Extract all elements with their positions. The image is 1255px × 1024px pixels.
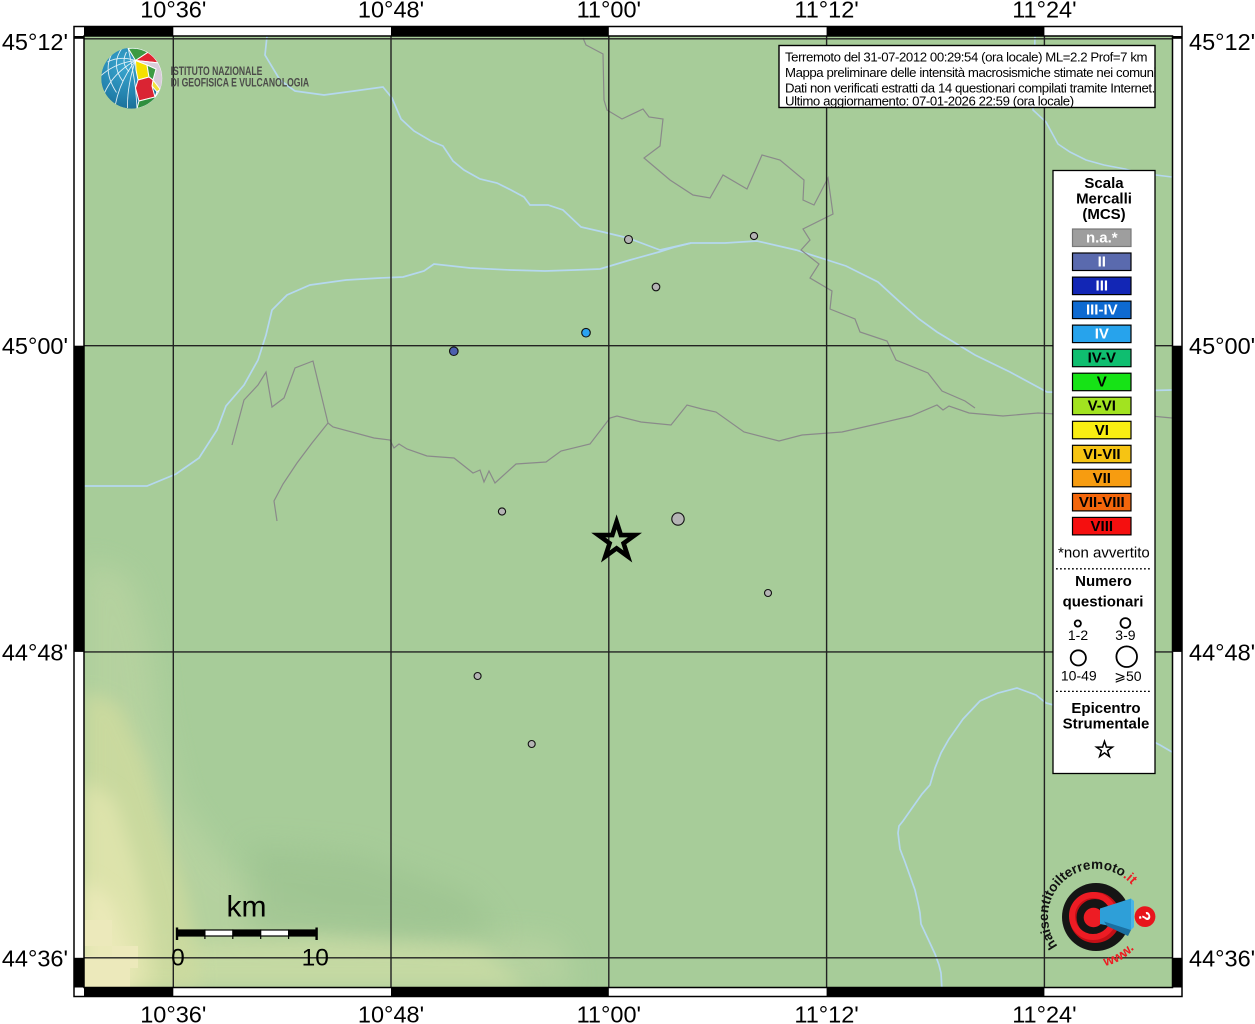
svg-text:Scala: Scala [1084, 175, 1124, 192]
svg-text:III-IV: III-IV [1086, 302, 1118, 319]
svg-text:DI GEOFISICA E VULCANOLOGIA: DI GEOFISICA E VULCANOLOGIA [171, 77, 310, 89]
svg-text:11°12': 11°12' [794, 0, 858, 23]
svg-text:1-2: 1-2 [1068, 627, 1088, 643]
svg-text:VI-VII: VI-VII [1083, 446, 1121, 463]
svg-text:VII: VII [1093, 470, 1111, 487]
svg-text:45°00': 45°00' [1189, 333, 1255, 359]
svg-text:10-49: 10-49 [1061, 668, 1097, 684]
svg-text:n.a.*: n.a.* [1086, 230, 1118, 247]
svg-text:Ultimo aggiornamento: 07-01-20: Ultimo aggiornamento: 07-01-2026 22:59 (… [785, 93, 1074, 108]
svg-text:km: km [227, 891, 267, 924]
svg-text:(MCS): (MCS) [1082, 206, 1125, 223]
svg-text:10°48': 10°48' [358, 0, 424, 23]
svg-text:11°24': 11°24' [1012, 0, 1076, 23]
svg-text:III: III [1096, 278, 1109, 295]
svg-text:V-VI: V-VI [1088, 398, 1116, 415]
svg-text:44°48': 44°48' [1189, 639, 1255, 665]
svg-text:V: V [1097, 374, 1107, 391]
svg-text:Mercalli: Mercalli [1076, 191, 1132, 208]
svg-text:II: II [1098, 254, 1106, 271]
svg-text:VIII: VIII [1091, 518, 1114, 535]
svg-text:10: 10 [302, 944, 329, 971]
svg-text:0: 0 [171, 944, 185, 971]
svg-text:⩾50: ⩾50 [1114, 668, 1142, 684]
svg-text:Strumentale: Strumentale [1063, 715, 1150, 732]
svg-text:11°12': 11°12' [794, 1002, 858, 1024]
svg-text:Numero: Numero [1075, 573, 1132, 590]
svg-text:VI: VI [1095, 422, 1109, 439]
svg-text:45°12': 45°12' [2, 29, 68, 55]
svg-text:Terremoto del 31-07-2012 00:29: Terremoto del 31-07-2012 00:29:54 (ora l… [785, 50, 1147, 65]
svg-text:10°36': 10°36' [140, 1002, 206, 1024]
svg-text:11°00': 11°00' [577, 0, 641, 23]
svg-text:11°00': 11°00' [577, 1002, 641, 1024]
svg-text:11°24': 11°24' [1012, 1002, 1076, 1024]
svg-text:45°00': 45°00' [2, 333, 68, 359]
svg-text:10°36': 10°36' [140, 0, 206, 23]
svg-text:VII-VIII: VII-VIII [1079, 494, 1125, 511]
svg-text:questionari: questionari [1063, 594, 1144, 611]
svg-text:IV-V: IV-V [1088, 350, 1116, 367]
svg-text:44°36': 44°36' [1189, 945, 1255, 971]
svg-text:44°48': 44°48' [2, 639, 68, 665]
svg-text:*non avvertito: *non avvertito [1058, 544, 1150, 561]
svg-text:3-9: 3-9 [1115, 627, 1135, 643]
svg-text:IV: IV [1095, 326, 1109, 343]
svg-text:44°36': 44°36' [2, 945, 68, 971]
svg-text:45°12': 45°12' [1189, 29, 1255, 55]
svg-text:Mappa preliminare delle intens: Mappa preliminare delle intensità macros… [785, 65, 1156, 80]
svg-text:10°48': 10°48' [358, 1002, 424, 1024]
